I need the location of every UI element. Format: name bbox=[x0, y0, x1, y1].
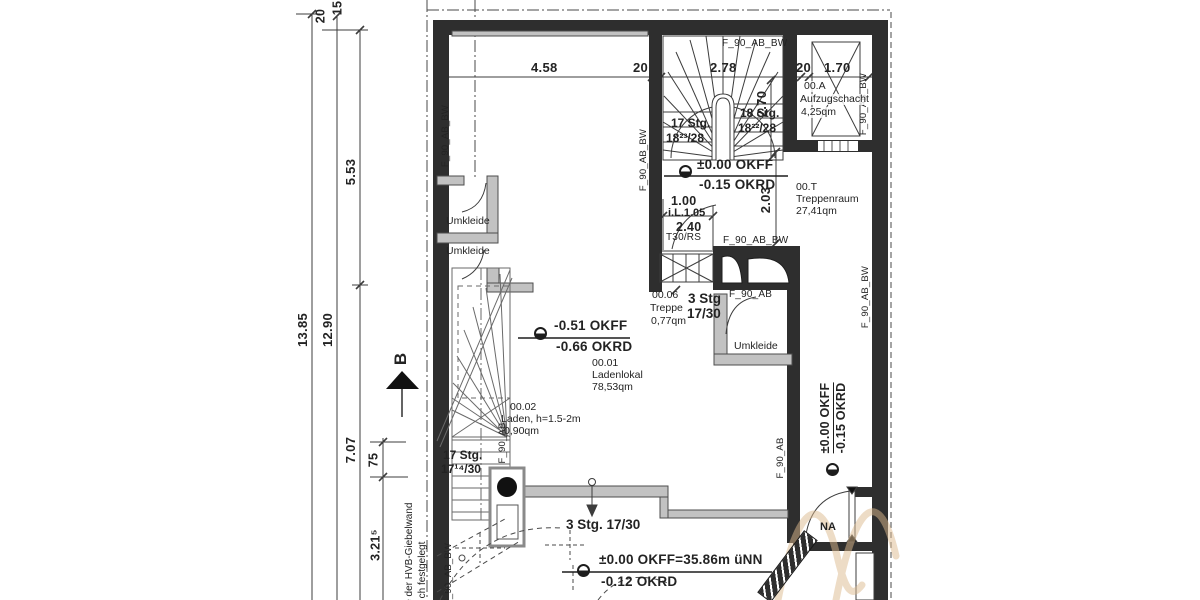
umkleide3-door-arc bbox=[726, 297, 756, 334]
fire-rating-label: F_90_AB bbox=[776, 437, 786, 478]
floor-plan-linework bbox=[0, 0, 1200, 600]
fire-rating-label: F_90_AB_BW bbox=[639, 129, 649, 191]
room-name: Aufzugschacht bbox=[799, 94, 870, 105]
exit-label-na: NA bbox=[820, 522, 836, 534]
fire-rating-label: F_90_AB bbox=[729, 290, 772, 301]
level-label: ±0.00 OKFF bbox=[697, 158, 773, 172]
room-number: 00.T bbox=[796, 182, 817, 193]
dim-label: 4.58 bbox=[531, 61, 558, 75]
stair-label: 18²³/28 bbox=[666, 132, 704, 145]
dim-label: 1.70 bbox=[824, 61, 851, 75]
room-number: 00.02 bbox=[510, 402, 536, 413]
room-name: Treppenraum bbox=[796, 194, 859, 205]
level-marker-icon bbox=[826, 463, 839, 476]
fire-rating-label: F_90_AB_BW bbox=[444, 543, 454, 600]
dim-label: 3.21⁵ bbox=[369, 529, 382, 561]
note-giebelwand-line1: Lage der HVB-Giebelwand bbox=[405, 503, 416, 600]
room-name: Laden, h=1.5-2m bbox=[501, 414, 581, 425]
room-name-umkleide: Umkleide bbox=[446, 216, 490, 227]
dim-label: i.L.1.05 bbox=[668, 208, 705, 220]
fire-rating-label: F_90_AB_BW bbox=[441, 105, 451, 167]
room-area: 78,53qm bbox=[592, 382, 633, 393]
section-label-b: B bbox=[392, 353, 410, 365]
level-label: -0.51 OKFF bbox=[554, 319, 627, 333]
room-area: 27,41qm bbox=[796, 206, 837, 217]
stair-label: 18²²/28 bbox=[738, 122, 776, 135]
level-label: ±0.00 OKFF=35.86m üNN bbox=[599, 553, 763, 567]
note-giebelwand-line2: ch festgelegt bbox=[418, 542, 429, 599]
room-name-umkleide: Umkleide bbox=[446, 246, 490, 257]
section-marker-b bbox=[386, 371, 419, 417]
level-marker-icon bbox=[577, 564, 590, 577]
level-label: -0.66 OKRD bbox=[556, 340, 632, 354]
room-name: Ladenlokal bbox=[592, 370, 643, 381]
stair-label: 17 Stg. bbox=[671, 117, 710, 130]
dim-label: 15 bbox=[331, 1, 344, 16]
level-marker-icon bbox=[534, 327, 547, 340]
dim-label: 13.85 bbox=[296, 313, 310, 347]
stair-label: 17/30 bbox=[687, 307, 721, 321]
stair-label: 17¹⁴/30 bbox=[441, 463, 481, 476]
room-number: 00.06 bbox=[652, 290, 678, 301]
room-number: 00.A bbox=[803, 81, 827, 92]
level-label: ±0.00 OKFF bbox=[818, 383, 834, 454]
fire-rating-label: F_90_AB_BW bbox=[861, 266, 871, 328]
column-block bbox=[490, 468, 524, 546]
level-label: -0.12 OKRD bbox=[601, 575, 677, 589]
elevator-door bbox=[818, 141, 858, 151]
stair-label: 3 Stg. 17/30 bbox=[566, 518, 640, 532]
dim-label: 20 bbox=[796, 61, 811, 75]
room-area: 0,90qm bbox=[504, 426, 539, 437]
room-area: 4,25qm bbox=[800, 107, 837, 118]
dim-label: 2.78 bbox=[710, 61, 737, 75]
umkleide1-door-arc bbox=[462, 183, 486, 212]
column-circle bbox=[497, 477, 517, 497]
room-name-umkleide: Umkleide bbox=[734, 341, 778, 352]
level-label-rotated: ±0.00 OKFF -0.15 OKRD bbox=[818, 383, 848, 454]
floor-plan-canvas: 20 15 13.85 12.90 5.53 7.07 75 3.21⁵ 4.5… bbox=[0, 0, 1200, 600]
fire-rating-label: F_90_AB_BW bbox=[723, 236, 788, 247]
fire-rating-label: F_90_AB_BW bbox=[722, 39, 787, 50]
stair-label: 18 Stg. bbox=[740, 107, 779, 120]
room-number: 00.01 bbox=[592, 358, 618, 369]
stair-label: 17 Stg. bbox=[443, 449, 482, 462]
stair-mid bbox=[660, 251, 713, 282]
room-name: Treppe bbox=[650, 303, 683, 314]
dim-label: 20 bbox=[633, 61, 648, 75]
dim-label: 20 bbox=[314, 9, 327, 24]
stair-label: 3 Stg bbox=[688, 292, 721, 306]
level-label: -0.15 OKRD bbox=[834, 383, 848, 454]
dim-label: 7.07 bbox=[344, 437, 358, 464]
room-area: 0,77qm bbox=[651, 316, 686, 327]
level-label: -0.15 OKRD bbox=[699, 178, 775, 192]
fire-rating-label: T30/RS bbox=[666, 233, 701, 244]
dim-label: 75 bbox=[367, 453, 380, 468]
dim-label: 5.53 bbox=[344, 159, 358, 186]
level-marker-icon bbox=[679, 165, 692, 178]
dim-label: 12.90 bbox=[321, 313, 335, 347]
